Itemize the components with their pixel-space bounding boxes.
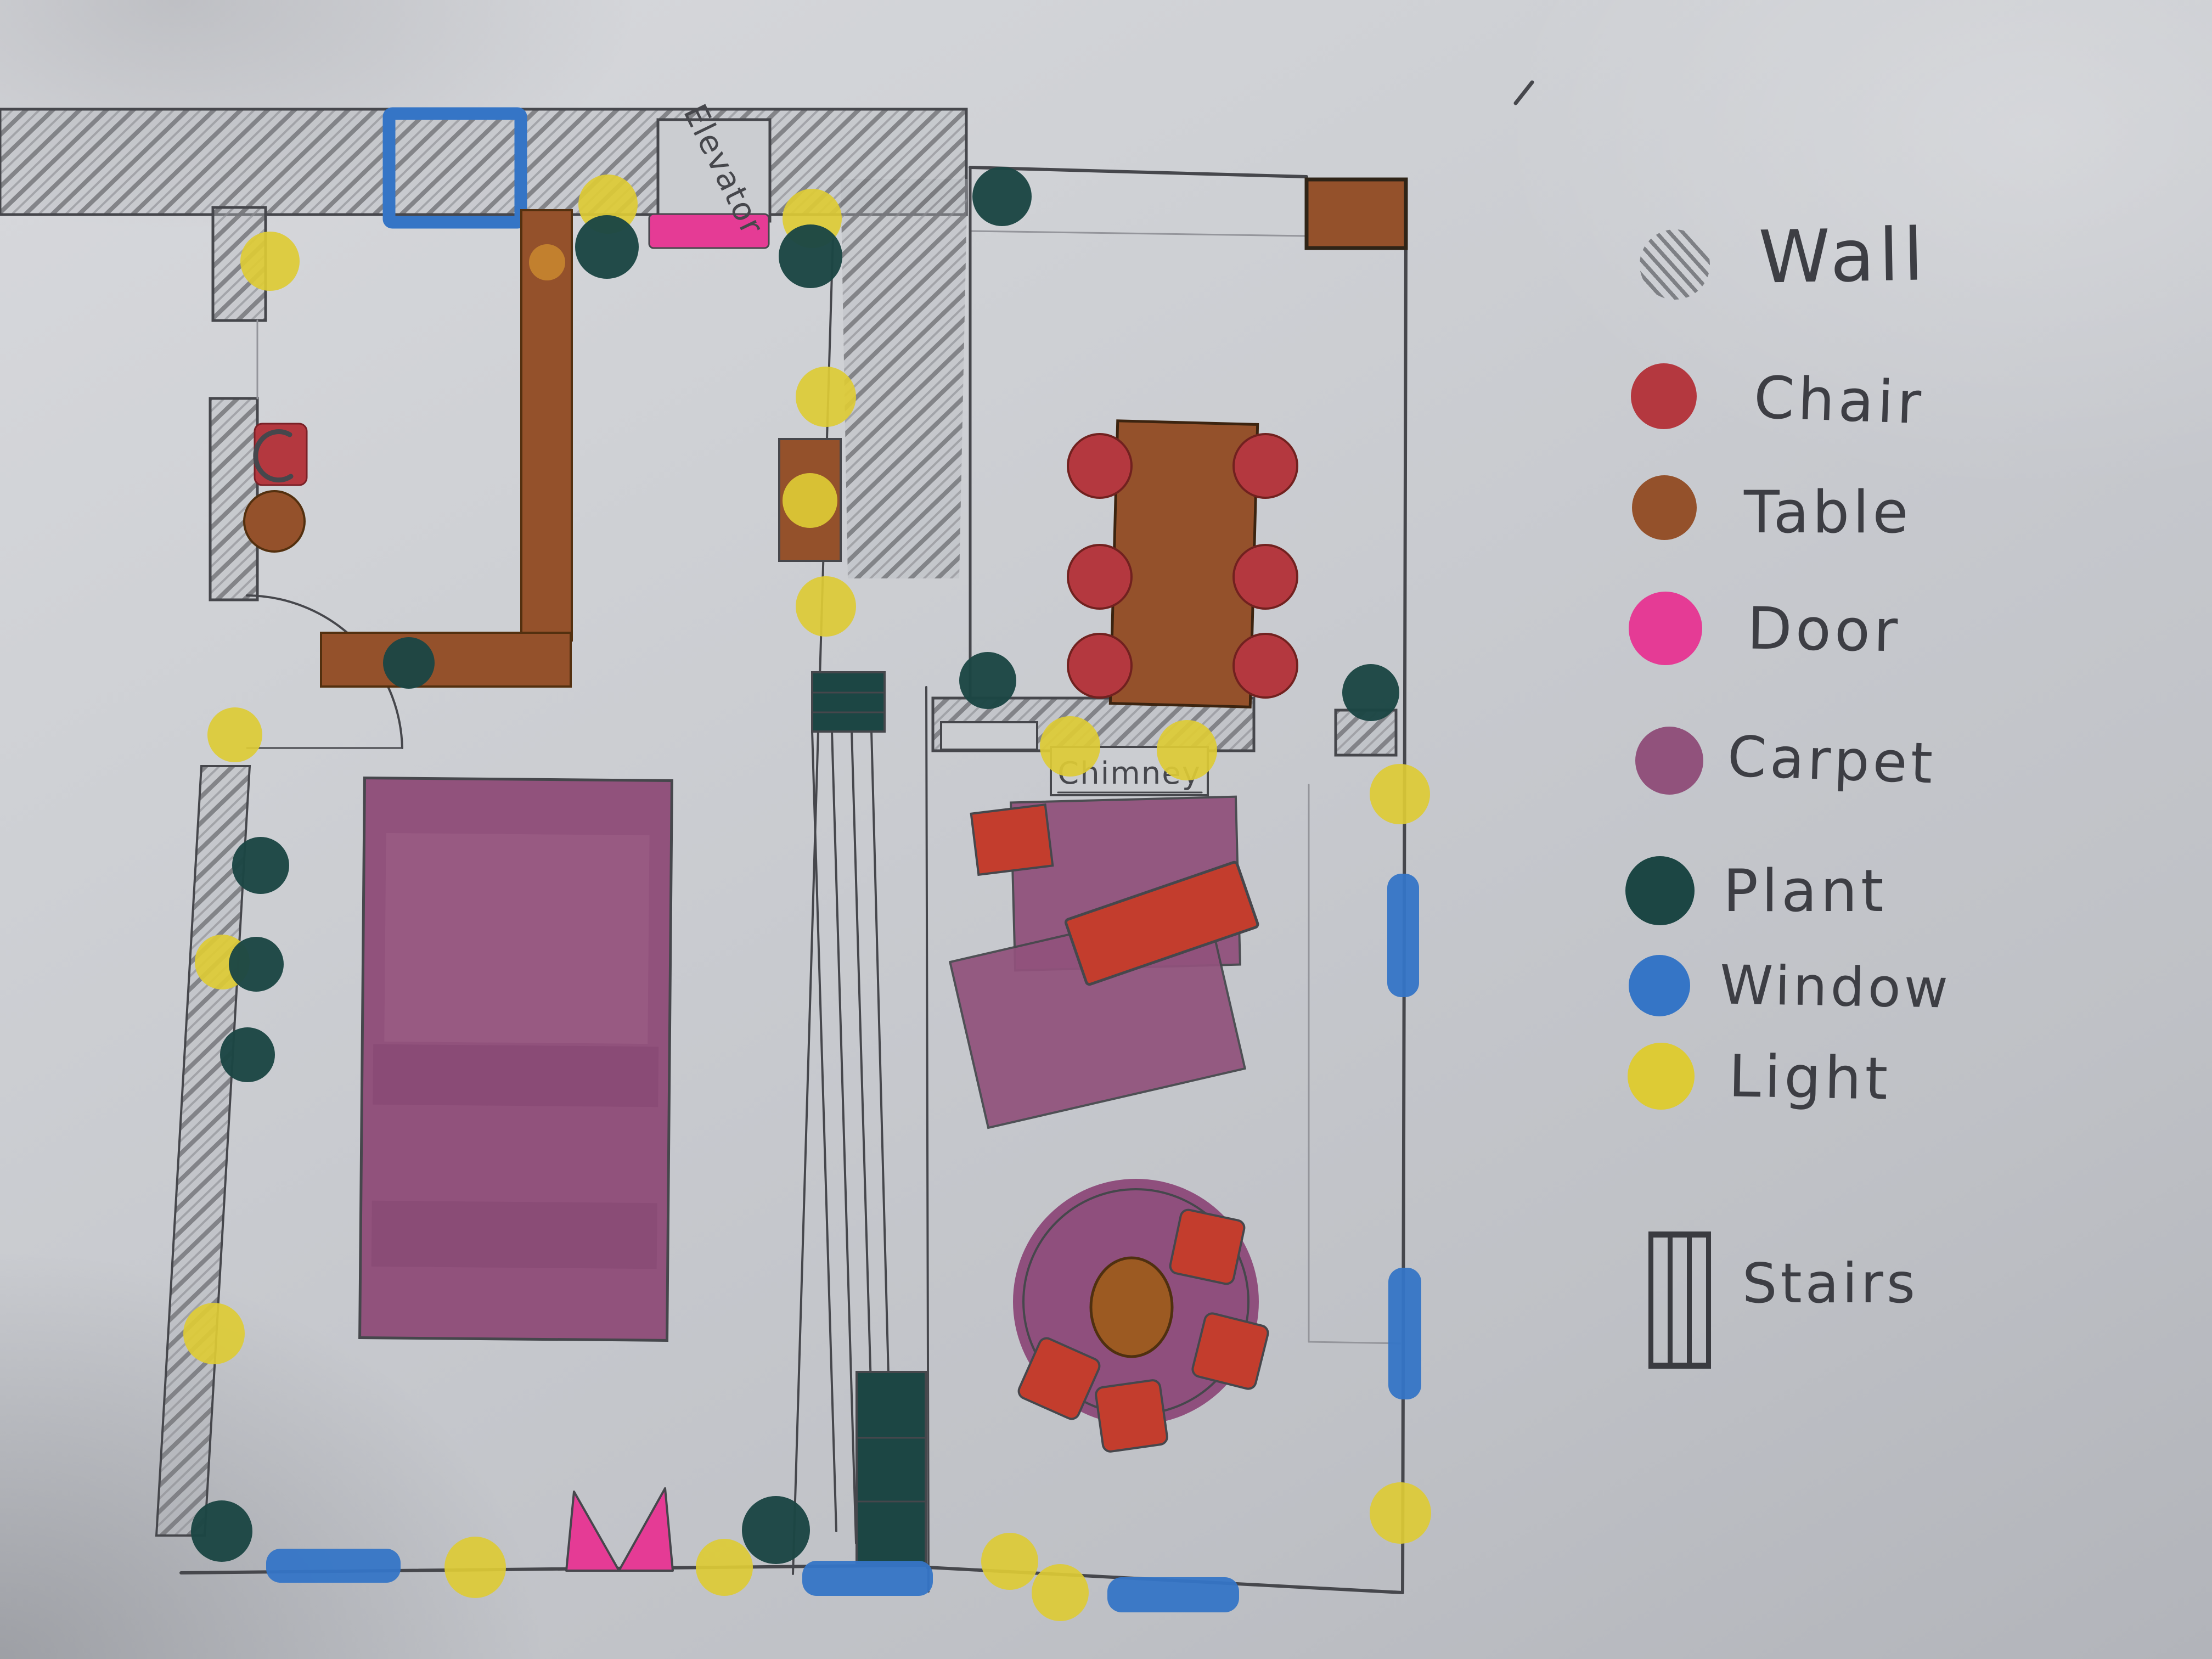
light-marker: [1370, 764, 1430, 824]
photo-of-floor-plan: { "plan": { "elevator_label": "Elevator"…: [0, 0, 2212, 1659]
dining-chair: [1068, 545, 1132, 609]
counter-knob: [529, 244, 565, 280]
floor-plan-drawing: ElevatorChimney: [0, 0, 2212, 1659]
plant-marker: [232, 837, 289, 894]
plant-box-lower: [857, 1372, 926, 1563]
light-marker: [183, 1303, 245, 1364]
dining-chair: [1068, 434, 1132, 498]
dining-chair: [1234, 434, 1297, 498]
lounge-chair: [1169, 1208, 1246, 1285]
stairs-line: [832, 731, 856, 1543]
dining-room-inner-line: [970, 231, 1307, 236]
plant-marker: [575, 215, 639, 279]
dining-chair: [1234, 545, 1297, 609]
round-table: [1091, 1258, 1172, 1357]
light-marker: [696, 1539, 753, 1596]
door-bow-right: [619, 1488, 673, 1571]
light-marker: [783, 473, 837, 528]
light-marker: [240, 232, 300, 291]
window-bottom-right: [1107, 1577, 1239, 1612]
light-marker: [796, 367, 856, 427]
photo-pen-mark: [1516, 82, 1532, 103]
lounge-chair: [1191, 1312, 1269, 1390]
window-right-upper: [1387, 874, 1419, 997]
lounge-chair: [1095, 1379, 1168, 1452]
light-marker: [207, 707, 262, 762]
plant-marker: [742, 1496, 810, 1564]
light-marker: [981, 1533, 1038, 1590]
plant-marker: [383, 637, 435, 689]
light-marker: [1032, 1564, 1089, 1621]
light-marker: [1157, 720, 1217, 780]
carpet-left-shade-1: [373, 1044, 658, 1107]
carpet-left-shade-2: [372, 1201, 657, 1269]
door-bow-left: [566, 1492, 619, 1571]
lounge-chair-square: [971, 805, 1053, 875]
light-marker: [1040, 716, 1100, 777]
light-marker: [444, 1537, 506, 1598]
light-marker: [1370, 1482, 1431, 1544]
plant-marker: [191, 1500, 252, 1562]
dining-chair: [1068, 634, 1132, 698]
left-wall-mid: [210, 398, 257, 600]
corridor-left-wall: [793, 237, 833, 1574]
plant-marker: [959, 652, 1016, 709]
plant-marker: [229, 937, 284, 992]
plant-marker: [220, 1027, 275, 1082]
dining-chair: [1234, 634, 1297, 698]
window-bottom-middle: [802, 1561, 933, 1596]
wall-ledge: [941, 722, 1037, 750]
plant-box-upper: [812, 672, 885, 732]
carpet-left-highlight: [384, 833, 649, 1044]
plant-marker: [1342, 664, 1399, 721]
sideboard: [1307, 179, 1406, 248]
corridor-wall: [841, 179, 967, 578]
light-marker: [796, 576, 856, 637]
window-right-lower: [1388, 1268, 1421, 1399]
wall-table: [244, 491, 305, 552]
plant-marker: [972, 167, 1032, 226]
plant-marker: [779, 224, 842, 288]
left-wall-lower: [156, 766, 250, 1536]
stairs-line: [812, 731, 836, 1531]
window-bottom-left: [266, 1549, 401, 1583]
kitchen-counter-arm: [321, 633, 571, 687]
lounge-inner-line-h: [1309, 1342, 1400, 1343]
